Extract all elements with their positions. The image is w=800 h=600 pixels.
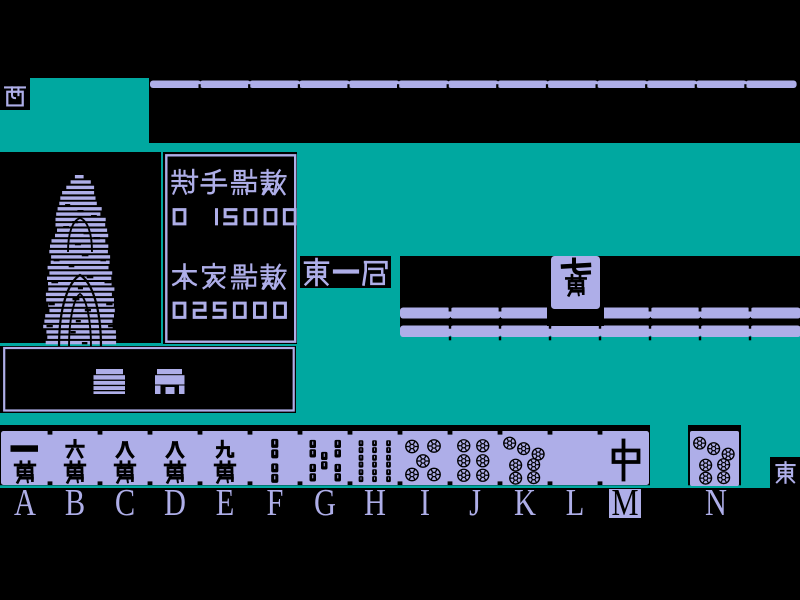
- svg-text:H: H: [364, 482, 386, 524]
- svg-text:E: E: [216, 482, 235, 524]
- svg-text:G: G: [314, 482, 336, 524]
- svg-text:K: K: [514, 482, 536, 524]
- svg-text:B: B: [65, 482, 85, 524]
- svg-text:L: L: [566, 482, 585, 524]
- svg-text:F: F: [267, 482, 284, 524]
- svg-text:N: N: [705, 482, 727, 524]
- svg-text:I: I: [420, 482, 430, 524]
- svg-text:M: M: [611, 482, 638, 524]
- svg-text:D: D: [164, 482, 186, 524]
- svg-text:J: J: [469, 482, 481, 524]
- svg-text:A: A: [14, 482, 36, 524]
- svg-text:C: C: [115, 482, 135, 524]
